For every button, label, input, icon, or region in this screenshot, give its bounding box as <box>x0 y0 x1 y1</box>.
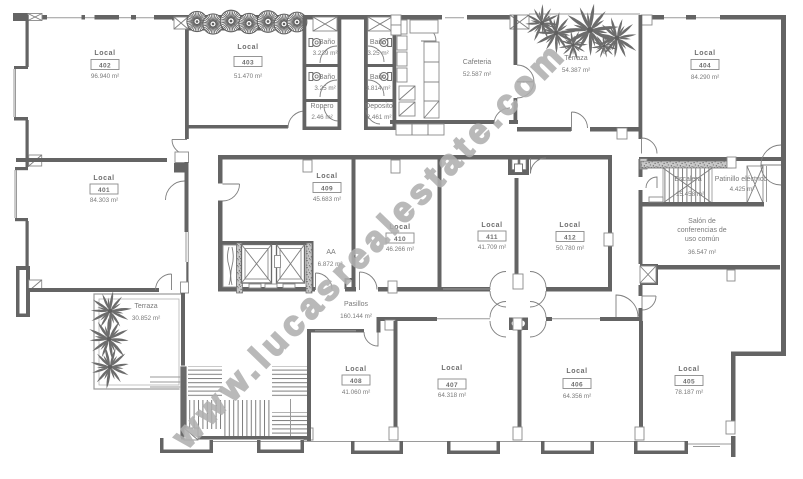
svg-text:412: 412 <box>564 235 576 242</box>
svg-text:Escalera: Escalera <box>674 176 701 183</box>
svg-text:Local: Local <box>237 44 258 51</box>
svg-text:Cafeteria: Cafeteria <box>463 59 492 66</box>
svg-text:15.458 m²: 15.458 m² <box>676 191 704 198</box>
svg-text:Local: Local <box>566 368 587 375</box>
svg-text:Baño: Baño <box>319 74 335 81</box>
svg-text:Pasillos: Pasillos <box>344 301 369 308</box>
svg-text:4.425 m²: 4.425 m² <box>730 186 755 193</box>
svg-text:52.587 m²: 52.587 m² <box>463 71 491 78</box>
svg-text:50.780 m²: 50.780 m² <box>556 245 584 252</box>
svg-text:Local: Local <box>481 222 502 229</box>
svg-text:Terraza: Terraza <box>134 303 157 310</box>
svg-text:Local: Local <box>93 175 114 182</box>
svg-text:Ropero: Ropero <box>311 103 334 110</box>
svg-text:409: 409 <box>321 186 333 193</box>
svg-text:403: 403 <box>242 60 254 67</box>
svg-text:Local: Local <box>678 366 699 373</box>
svg-text:408: 408 <box>350 378 362 385</box>
svg-text:conferencias de: conferencias de <box>677 227 727 234</box>
svg-text:2.461 m²: 2.461 m² <box>367 114 392 121</box>
svg-text:78.187 m²: 78.187 m² <box>675 389 703 396</box>
svg-text:Local: Local <box>694 50 715 57</box>
svg-text:3.814 m²: 3.814 m² <box>366 85 391 92</box>
svg-text:41.709 m²: 41.709 m² <box>478 244 506 251</box>
svg-text:96.940 m²: 96.940 m² <box>91 73 119 80</box>
svg-text:406: 406 <box>571 382 583 389</box>
svg-text:84.290 m²: 84.290 m² <box>691 74 719 81</box>
svg-text:3.25 m²: 3.25 m² <box>367 50 388 57</box>
svg-text:3.25 m²: 3.25 m² <box>314 85 335 92</box>
svg-text:36.547 m²: 36.547 m² <box>688 249 716 256</box>
svg-text:405: 405 <box>683 379 695 386</box>
svg-text:Local: Local <box>345 366 366 373</box>
svg-text:Local: Local <box>316 173 337 180</box>
svg-text:Local: Local <box>559 222 580 229</box>
svg-text:45.683 m²: 45.683 m² <box>313 196 341 203</box>
svg-text:Local: Local <box>94 50 115 57</box>
svg-text:404: 404 <box>699 63 711 70</box>
svg-text:Salón de: Salón de <box>688 218 716 225</box>
svg-text:Patinillo eléctrico: Patinillo eléctrico <box>715 176 768 183</box>
svg-text:51.470 m²: 51.470 m² <box>234 73 262 80</box>
svg-text:402: 402 <box>99 63 111 70</box>
svg-text:64.318 m²: 64.318 m² <box>438 392 466 399</box>
svg-text:3.239 m²: 3.239 m² <box>313 50 338 57</box>
svg-text:407: 407 <box>446 382 458 389</box>
svg-text:41.060 m²: 41.060 m² <box>342 389 370 396</box>
svg-text:Baño: Baño <box>370 74 386 81</box>
svg-text:160.144 m²: 160.144 m² <box>340 313 372 320</box>
svg-text:84.303 m²: 84.303 m² <box>90 197 118 204</box>
svg-text:2.46 m²: 2.46 m² <box>311 114 332 121</box>
svg-text:30.852 m²: 30.852 m² <box>132 315 160 322</box>
svg-text:411: 411 <box>486 234 498 241</box>
svg-text:uso común: uso común <box>685 236 719 243</box>
svg-text:Baño: Baño <box>370 39 386 46</box>
svg-text:Baño: Baño <box>319 39 335 46</box>
svg-text:64.356 m²: 64.356 m² <box>563 393 591 400</box>
svg-text:Local: Local <box>441 365 462 372</box>
svg-text:401: 401 <box>98 187 110 194</box>
svg-text:Deposito: Deposito <box>365 103 393 110</box>
